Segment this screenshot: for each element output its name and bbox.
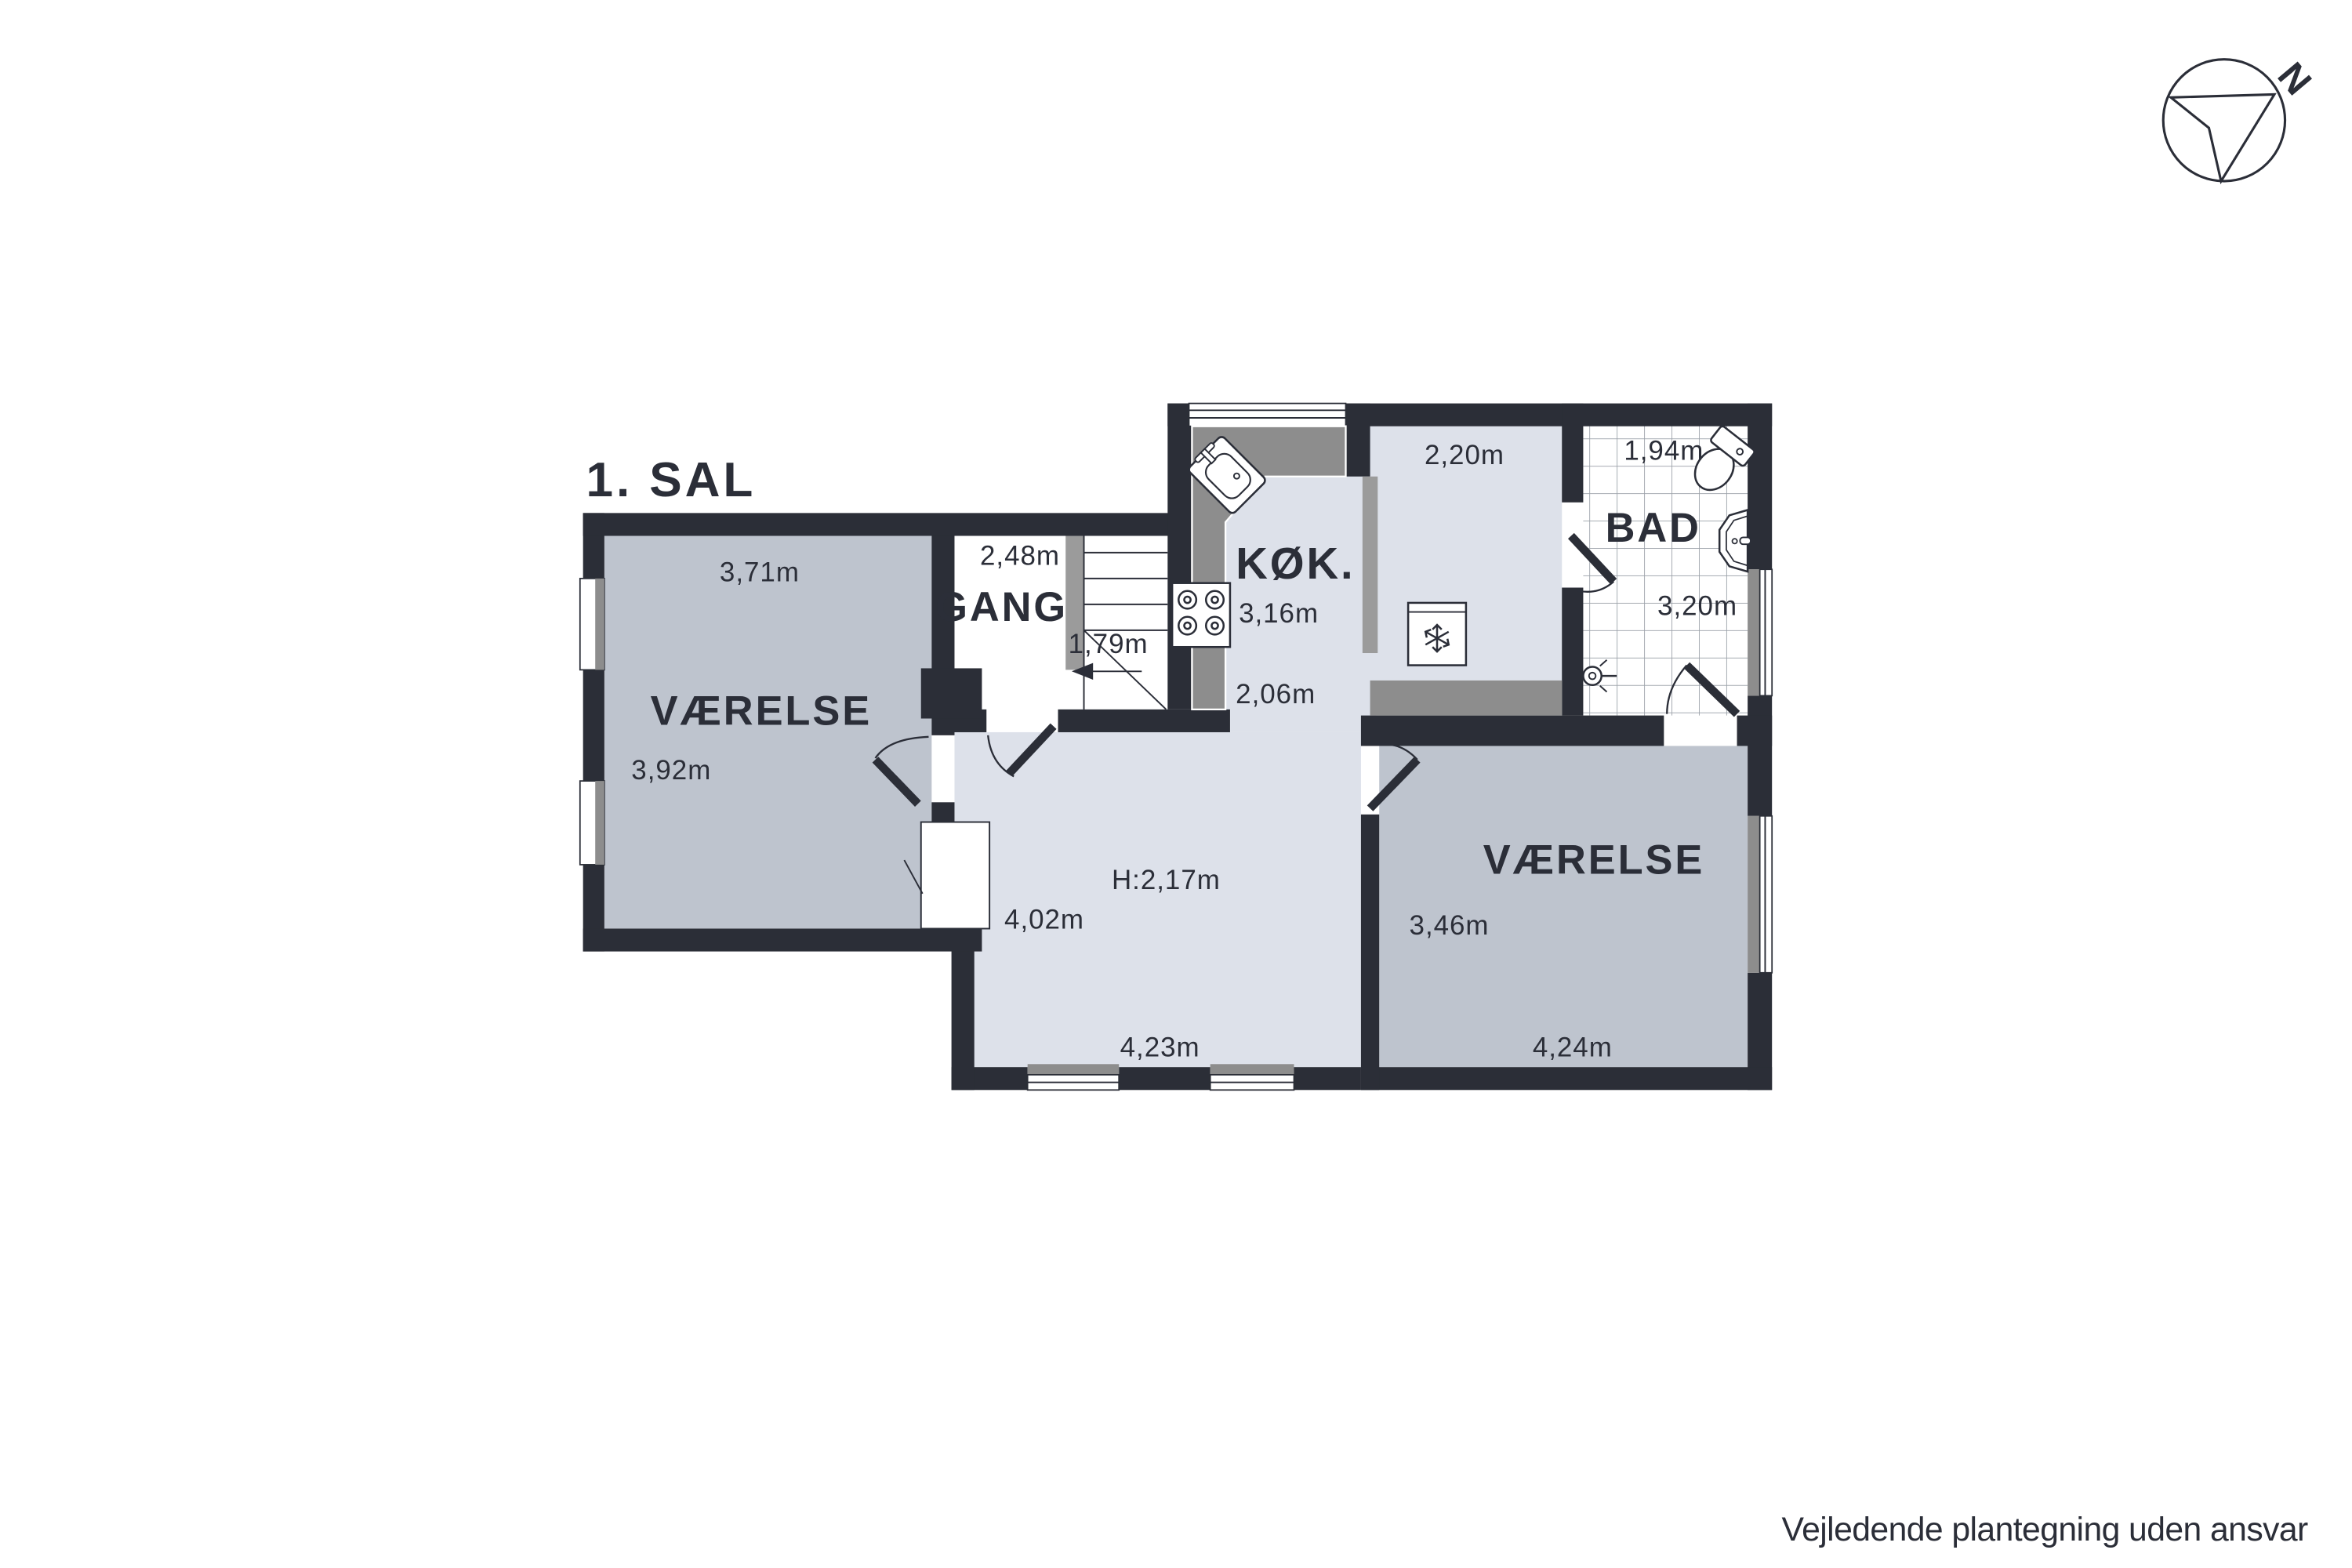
dim-center-depth: 4,02m — [1004, 904, 1084, 935]
window — [1028, 1064, 1120, 1090]
dim-gang-width: 2,48m — [980, 540, 1060, 571]
room-label-gang: GANG — [935, 585, 1068, 630]
dim-vaerelse-right-depth: 3,46m — [1410, 910, 1490, 941]
compass-icon: N — [2163, 55, 2319, 181]
room-vaerelse-right-floor — [1379, 746, 1748, 1067]
dim-koekken-lower-width: 2,06m — [1236, 679, 1316, 710]
disclaimer: Vejledende plantegning uden ansvar — [1782, 1511, 2309, 1548]
dim-vaerelse-right-width: 4,24m — [1533, 1033, 1613, 1063]
dim-center-width: 4,23m — [1120, 1033, 1200, 1063]
window — [1189, 404, 1346, 426]
window — [580, 781, 604, 865]
stove-icon — [1172, 583, 1230, 648]
window — [1210, 1064, 1294, 1090]
dim-room-2-20-width: 2,20m — [1425, 440, 1504, 470]
floor-plan-page: 1. SAL 3,71m VÆRELSE 3,92m 2,48m GANG 1,… — [0, 0, 2352, 1568]
counter-2-20-room — [1370, 681, 1563, 716]
window — [1748, 569, 1772, 695]
page-title: 1. SAL — [586, 453, 757, 507]
koekken-partition-half-wall — [1363, 477, 1377, 653]
dim-vaerelse-left-depth: 3,92m — [631, 755, 711, 786]
compass-north-label: N — [2270, 55, 2320, 103]
dim-bad-width: 1,94m — [1624, 435, 1704, 466]
room-label-bad: BAD — [1606, 506, 1701, 551]
fridge-icon — [1408, 603, 1466, 666]
dim-vaerelse-left-width: 3,71m — [720, 557, 800, 588]
room-label-vaerelse-right: VÆRELSE — [1483, 838, 1704, 884]
room-label-vaerelse-left: VÆRELSE — [651, 688, 872, 734]
window — [580, 579, 604, 670]
dim-center-ceiling-height: H:2,17m — [1112, 865, 1221, 895]
window — [1748, 816, 1772, 973]
floor-plan-svg: 1. SAL 3,71m VÆRELSE 3,92m 2,48m GANG 1,… — [0, 0, 2352, 1568]
room-center-floor — [954, 732, 1360, 1067]
room-label-koekken: KØK. — [1236, 539, 1355, 588]
dim-stairs-width: 1,79m — [1069, 629, 1149, 659]
dim-koekken-width: 3,16m — [1239, 598, 1319, 629]
dim-bad-depth: 3,20m — [1657, 590, 1737, 621]
